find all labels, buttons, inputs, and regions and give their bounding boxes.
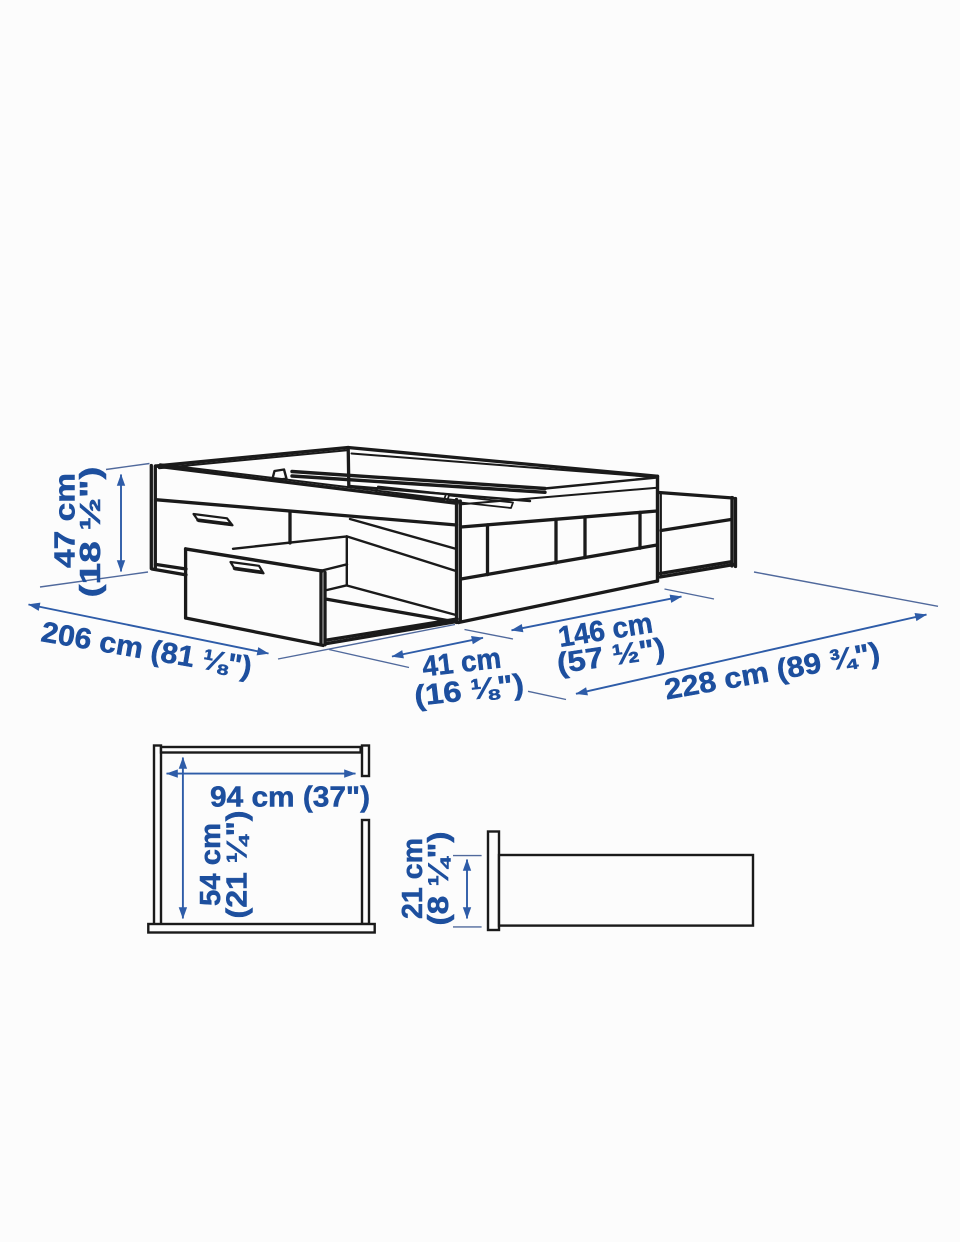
svg-text:(8 ¼"): (8 ¼") [423, 832, 455, 926]
svg-text:(21 ¼"): (21 ¼") [222, 811, 254, 919]
svg-text:228 cm (89 ¾"): 228 cm (89 ¾") [662, 637, 882, 706]
svg-text:(18 ½"): (18 ½") [75, 467, 107, 598]
svg-text:94 cm (37"): 94 cm (37") [210, 782, 370, 814]
